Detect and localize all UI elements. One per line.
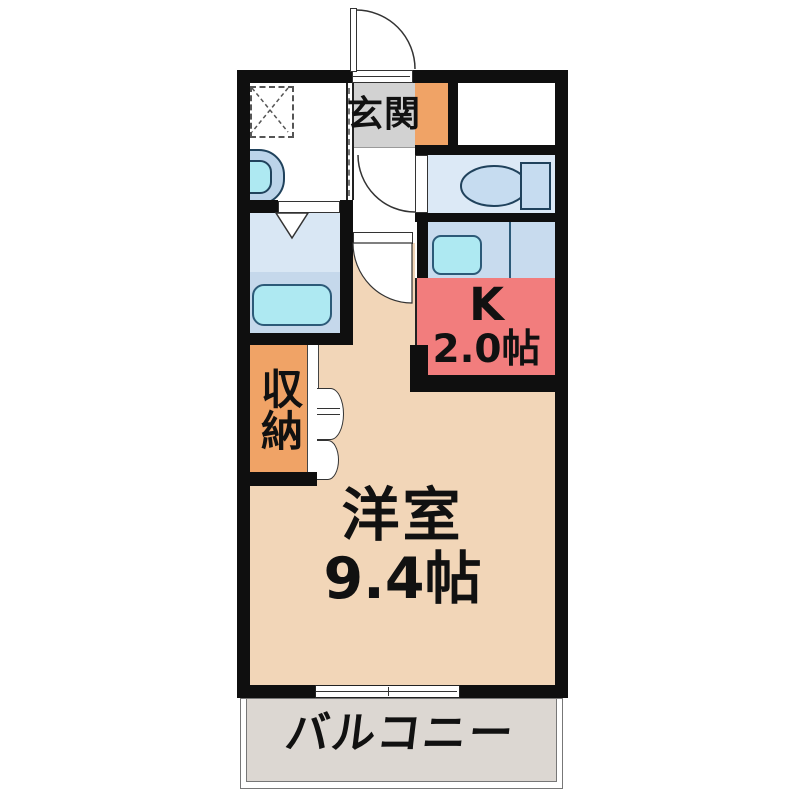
balcony-label: バルコニー <box>251 705 548 763</box>
outer-wall-top-right <box>413 70 568 83</box>
window-center-tick <box>388 687 389 696</box>
outer-wall-bottom-left <box>237 685 315 698</box>
kitchen-counter-divider <box>509 222 511 278</box>
wall-kitchen-bottom <box>428 375 555 392</box>
closet-door-panel-line2 <box>317 414 340 415</box>
wall-counter-left <box>417 222 428 278</box>
room-door-panel <box>353 232 413 244</box>
closet-bifold-door-lower <box>317 440 339 480</box>
kitchen-sink-icon <box>432 235 482 275</box>
wall-washroom-bottom-a <box>237 200 278 213</box>
outer-wall-bottom-right <box>460 685 568 698</box>
bathtub-icon <box>252 284 332 326</box>
western-room-floor-hall-strip <box>353 243 415 486</box>
toilet-door-arc <box>358 155 415 212</box>
washbasin-bowl <box>248 160 272 194</box>
storage-label: 収納 <box>252 352 306 466</box>
floor-plan: 玄関 K 2.0帖 収納 洋室 9.4帖 バルコニー <box>0 0 800 800</box>
balcony-text: バルコニー <box>282 710 517 758</box>
toilet-room-floor <box>428 155 555 213</box>
outer-wall-right <box>555 70 568 698</box>
western-room-size: 9.4帖 <box>324 548 482 611</box>
western-room-name: 洋室 <box>341 484 463 548</box>
entrance-threshold-line <box>353 76 410 77</box>
entrance-door-arc <box>356 10 415 69</box>
genkan-text: 玄関 <box>347 95 421 135</box>
western-room-floor-under-kitchen <box>415 392 555 486</box>
genkan-label: 玄関 <box>350 88 418 142</box>
kitchen-letter: K <box>469 280 504 330</box>
kitchen-size: 2.0帖 <box>432 329 540 372</box>
bathroom-floor <box>250 213 340 272</box>
window-center-line <box>316 691 457 692</box>
service-room-floor <box>458 83 555 145</box>
entrance-door-leaf <box>350 8 357 72</box>
outer-wall-top-left <box>237 70 352 83</box>
wall-service-room-bottom <box>415 145 555 155</box>
closet-door-panel-line <box>317 408 340 409</box>
western-room-label: 洋室 9.4帖 <box>250 480 555 615</box>
wall-bathroom-right <box>340 213 353 345</box>
kitchen-label: K 2.0帖 <box>418 280 555 372</box>
washing-machine-space-icon <box>250 86 294 138</box>
storage-text: 収納 <box>249 367 310 451</box>
wall-washroom-bottom-b <box>340 200 353 213</box>
toilet-door-panel <box>415 155 428 213</box>
bathroom-door-head <box>278 201 340 213</box>
wall-bathroom-bottom <box>237 333 353 345</box>
wall-toilet-bottom <box>415 213 555 222</box>
